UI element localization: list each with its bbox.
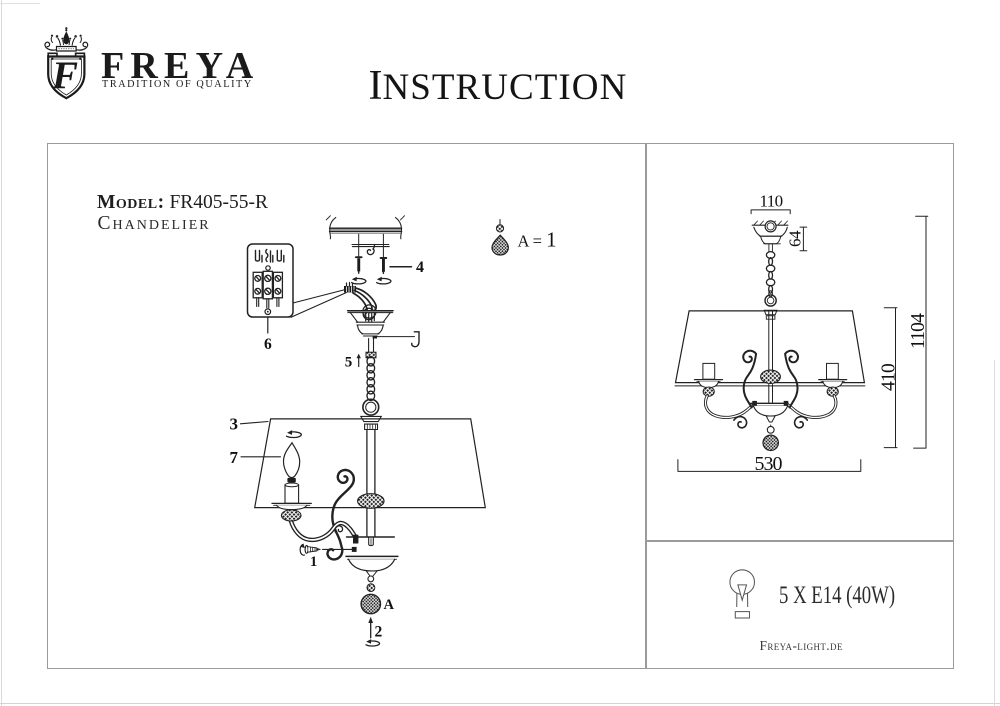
- svg-text:110: 110: [760, 192, 783, 211]
- svg-text:410: 410: [879, 364, 900, 391]
- svg-text:64: 64: [786, 230, 805, 247]
- svg-text:530: 530: [755, 453, 783, 475]
- svg-text:1104: 1104: [908, 313, 929, 349]
